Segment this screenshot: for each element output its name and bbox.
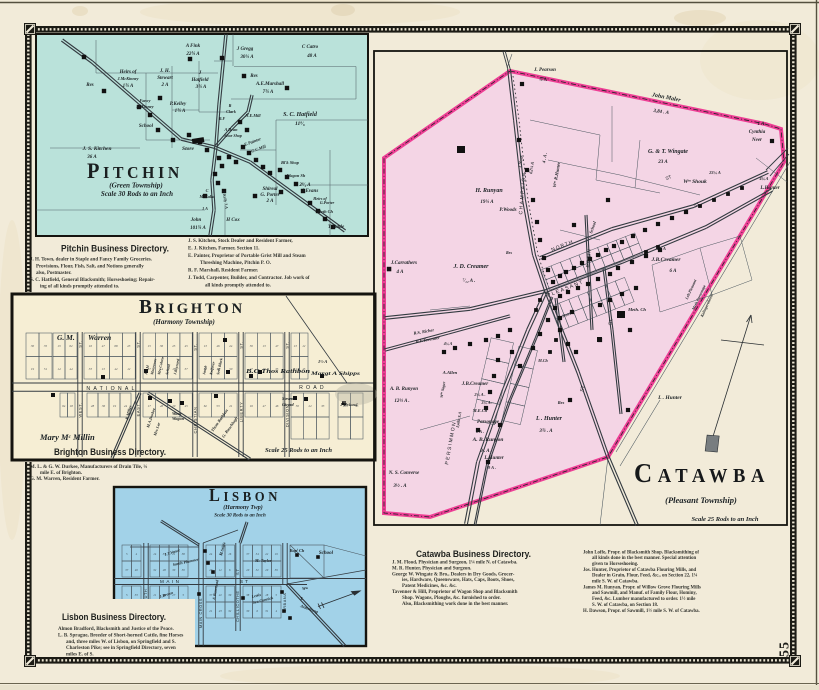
svg-text:School: School	[139, 124, 154, 129]
svg-text:J Evans: J Evans	[301, 189, 319, 194]
svg-text:Dealer in Grain, Flour, Feed,: Dealer in Grain, Flour, Feed, &c., on Se…	[592, 574, 698, 579]
svg-text:A Fink: A Fink	[185, 44, 201, 49]
svg-text:13: 13	[57, 344, 61, 348]
svg-text:101¾ A: 101¾ A	[190, 226, 206, 231]
svg-text:Jos. Hunter, Proprietor of Cat: Jos. Hunter, Proprietor of Catawba Flour…	[583, 568, 697, 573]
svg-text:Scale 25 Rods to an Inch: Scale 25 Rods to an Inch	[692, 516, 759, 523]
svg-text:Bl'k Shop: Bl'k Shop	[280, 160, 300, 165]
svg-text:1 A: 1 A	[202, 206, 208, 211]
svg-text:Threshing Machine, Pitchin P.: Threshing Machine, Pitchin P. O.	[200, 261, 272, 266]
svg-text:Scale 25 Rods to an Inch: Scale 25 Rods to an Inch	[265, 447, 332, 454]
svg-text:J. M. Flood, Physician and Sur: J. M. Flood, Physician and Surgeon, 1¼ m…	[392, 561, 517, 566]
svg-text:Wm Shouk: Wm Shouk	[683, 179, 707, 185]
svg-text:50: 50	[296, 404, 300, 408]
svg-text:32: 32	[153, 568, 157, 572]
svg-text:ing of all kinds promptly atte: ing of all kinds promptly attended to.	[40, 285, 120, 290]
svg-text:2⁸⁄₄ A: 2⁸⁄₄ A	[298, 182, 311, 188]
svg-text:44: 44	[69, 367, 73, 371]
svg-text:E. J. Kitchen, Farmer, Section: E. J. Kitchen, Farmer, Section 11.	[188, 246, 260, 251]
svg-text:19: 19	[113, 404, 117, 408]
svg-text:Catawba Business Directory.: Catawba Business Directory.	[416, 549, 531, 560]
svg-text:23: 23	[127, 344, 131, 348]
svg-text:MAIN CROSS: MAIN CROSS	[199, 598, 203, 628]
svg-text:11⁸⁄₆: 11⁸⁄₆	[295, 121, 305, 127]
svg-text:also, Postmaster.: also, Postmaster.	[36, 271, 72, 276]
svg-text:19¼ A: 19¼ A	[480, 200, 494, 205]
svg-text:J. H.: J. H.	[159, 69, 170, 74]
svg-text:¾ A: ¾ A	[539, 78, 548, 83]
svg-text:19: 19	[275, 552, 279, 556]
svg-text:Heirs of: Heirs of	[119, 70, 138, 75]
svg-text:N.E.Mill: N.E.Mill	[244, 113, 261, 118]
svg-text:EAST: EAST	[136, 404, 141, 417]
svg-text:all kinds promptly attended to: all kinds promptly attended to.	[205, 283, 272, 288]
svg-text:CHRISTIAN: CHRISTIAN	[193, 407, 198, 434]
svg-text:46: 46	[160, 404, 164, 408]
svg-text:36: 36	[102, 404, 106, 408]
svg-text:3¾ . A: 3¾ . A	[538, 429, 553, 434]
svg-text:A.E.Marshall: A.E.Marshall	[255, 82, 285, 87]
svg-text:Also, Blacksmithing work done: Also, Blacksmithing work done in the bes…	[402, 602, 508, 607]
svg-text:L.Hunter: L.Hunter	[759, 186, 779, 191]
svg-text:John: John	[190, 218, 202, 223]
svg-text:Brighton Business Directory.: Brighton Business Directory.	[54, 447, 166, 457]
svg-text:13: 13	[102, 367, 106, 371]
svg-text:48 A: 48 A	[306, 54, 317, 59]
svg-text:12: 12	[302, 344, 306, 348]
svg-text:J. H. Town, dealer in Staple a: J. H. Town, dealer in Staple and Fancy F…	[30, 258, 153, 263]
svg-text:9 . A .: 9 . A .	[480, 449, 492, 454]
svg-text:R: R	[229, 103, 232, 108]
svg-text:Store: Store	[182, 146, 194, 152]
svg-text:J. Pearson: J. Pearson	[533, 68, 556, 73]
svg-text:38: 38	[246, 593, 250, 597]
svg-text:URBANA: URBANA	[283, 593, 287, 612]
svg-text:J: J	[198, 71, 202, 76]
svg-text:and, three miles W. of Lisbon,: and, three miles W. of Lisbon, on Spring…	[66, 640, 177, 645]
svg-text:14: 14	[153, 552, 157, 556]
svg-text:G.Porter: G.Porter	[320, 200, 335, 205]
svg-text:16: 16	[228, 552, 232, 556]
svg-text:E. Painter, Proprietor of Port: E. Painter, Proprietor of Portable Grist…	[188, 254, 307, 259]
svg-text:45: 45	[185, 344, 189, 348]
svg-text:22¾ A: 22¾ A	[185, 52, 200, 57]
svg-text:James M. Runyan, Propr. of Wil: James M. Runyan, Propr. of Willow Grove …	[583, 585, 701, 590]
svg-text:J. Todd, Carpenter, Builder, a: J. Todd, Carpenter, Builder, and Contrac…	[188, 276, 310, 281]
svg-text:Stewart: Stewart	[157, 76, 173, 81]
svg-text:C: C	[206, 188, 209, 193]
svg-text:1½ A: 1½ A	[318, 359, 327, 364]
svg-text:LIBERTY: LIBERTY	[239, 402, 244, 423]
svg-text:C Catro: C Catro	[302, 45, 319, 50]
svg-text:and Sawmill, and Manuf. of Fam: and Sawmill, and Manuf. of Family Flour,…	[592, 591, 698, 596]
svg-text:15: 15	[148, 344, 152, 348]
svg-text:L . Hunter: L . Hunter	[535, 416, 563, 422]
svg-text:L. B. Sprague, Breeder of Shor: L. B. Sprague, Breeder of Short-horned C…	[58, 633, 183, 638]
svg-text:ROAD: ROAD	[299, 385, 327, 391]
svg-text:Bapt Ch: Bapt Ch	[289, 548, 305, 553]
svg-text:Charleston Pike; see in Spring: Charleston Pike; see in Springfield Dire…	[66, 646, 176, 651]
svg-text:16: 16	[250, 404, 254, 408]
svg-text:4½ A: 4½ A	[655, 246, 666, 251]
svg-text:J. S. Kitchen, Stock Dealer an: J. S. Kitchen, Stock Dealer and Resident…	[188, 239, 293, 244]
svg-text:Neer: Neer	[751, 138, 762, 143]
svg-text:Shireal: Shireal	[262, 187, 278, 192]
svg-text:miles E. of S.: miles E. of S.	[66, 653, 94, 658]
svg-text:J Gregg: J Gregg	[236, 47, 254, 52]
svg-text:⁷⁄₁₂ A .: ⁷⁄₁₂ A .	[463, 278, 476, 284]
svg-text:R. F. Marshall, Resident Farme: R. F. Marshall, Resident Farmer.	[188, 269, 259, 274]
svg-text:28: 28	[91, 404, 95, 408]
svg-text:46: 46	[216, 344, 220, 348]
svg-text:19: 19	[31, 367, 35, 371]
svg-text:ST.: ST.	[239, 341, 244, 349]
svg-text:35: 35	[44, 344, 48, 348]
svg-text:Res: Res	[558, 400, 565, 405]
svg-text:37: 37	[185, 367, 189, 371]
svg-text:B.C.Thos Rathbon: B.C.Thos Rathbon	[245, 368, 311, 375]
svg-text:R.F: R.F	[219, 116, 226, 121]
svg-text:30¼ A: 30¼ A	[239, 55, 254, 60]
svg-text:55: 55	[778, 641, 793, 657]
svg-text:L.Hunter: L.Hunter	[483, 456, 503, 461]
svg-text:16: 16	[89, 344, 93, 348]
svg-text:3¼ A .: 3¼ A .	[480, 400, 492, 405]
svg-text:P.Woods: P.Woods	[499, 208, 516, 213]
svg-text:A. B. Runyon: A. B. Runyon	[389, 387, 418, 392]
svg-text:N. S. Converse: N. S. Converse	[388, 471, 420, 476]
svg-text:51: 51	[44, 367, 48, 371]
svg-text:30: 30	[182, 568, 186, 572]
svg-text:68: 68	[114, 344, 118, 348]
svg-text:30: 30	[31, 344, 35, 348]
svg-text:T Tuttle: T Tuttle	[328, 225, 345, 230]
svg-text:18: 18	[70, 404, 74, 408]
svg-text:(Pleasant Township): (Pleasant Township)	[665, 495, 737, 505]
svg-text:Almon Bradford, Blacksmith and: Almon Bradford, Blacksmith and Justice o…	[58, 627, 174, 632]
svg-text:36: 36	[160, 344, 164, 348]
svg-text:33: 33	[89, 367, 93, 371]
svg-text:4¼ A: 4¼ A	[443, 341, 453, 346]
svg-text:23¼ A: 23¼ A	[708, 170, 721, 175]
svg-text:L . Hunter: L . Hunter	[657, 395, 683, 401]
svg-text:62: 62	[69, 344, 73, 348]
svg-text:John Loffe, Propr. of Blacksmi: John Loffe, Propr. of Blacksmith Shop. B…	[583, 550, 699, 555]
svg-text:Meth. Ch: Meth. Ch	[627, 307, 646, 312]
svg-text:3¾ A: 3¾ A	[195, 85, 207, 90]
svg-text:1¾ A: 1¾ A	[175, 109, 186, 114]
svg-text:A Dean: A Dean	[224, 127, 239, 132]
svg-text:Margt A Shipps: Margt A Shipps	[310, 371, 360, 377]
svg-text:40: 40	[135, 568, 139, 572]
svg-text:G. M.: G. M.	[57, 333, 75, 342]
svg-text:Lisbon Business Directory.: Lisbon Business Directory.	[62, 612, 166, 622]
svg-text:42: 42	[114, 367, 118, 371]
svg-text:12: 12	[127, 367, 131, 371]
svg-text:Patent Medicines, &c. &c.: Patent Medicines, &c. &c.	[402, 584, 457, 589]
svg-text:37: 37	[125, 568, 129, 572]
svg-text:H Cox: H Cox	[225, 218, 240, 223]
svg-text:32: 32	[256, 568, 260, 572]
svg-text:J. S. Kitchen: J. S. Kitchen	[81, 146, 111, 152]
svg-text:64: 64	[62, 404, 66, 408]
svg-text:M. R. Hunter, Physician and Su: M. R. Hunter, Physician and Surgeon.	[392, 566, 471, 571]
svg-text:24: 24	[229, 344, 233, 348]
svg-text:6 A: 6 A	[670, 269, 678, 274]
svg-text:28: 28	[163, 568, 167, 572]
svg-text:47: 47	[275, 344, 279, 348]
svg-text:50: 50	[250, 344, 254, 348]
svg-text:all kinds done in the best man: all kinds done in the best manner. Speci…	[592, 556, 697, 561]
svg-text:22: 22	[309, 404, 313, 408]
svg-text:36 A: 36 A	[86, 155, 97, 160]
svg-text:31: 31	[265, 609, 269, 613]
svg-text:25: 25	[172, 344, 176, 348]
svg-text:29: 29	[172, 404, 176, 408]
svg-text:Girard: Girard	[282, 402, 295, 407]
svg-text:ST.: ST.	[136, 340, 141, 348]
svg-text:George W. Wingate & Bro., Deal: George W. Wingate & Bro., Dealers in Dry…	[392, 572, 515, 577]
svg-text:Clark: Clark	[226, 109, 237, 114]
svg-text:mile E. of Brighton.: mile E. of Brighton.	[40, 471, 83, 476]
svg-text:20: 20	[246, 568, 250, 572]
svg-text:1 A: 1 A	[758, 122, 766, 127]
svg-text:Cynthia: Cynthia	[749, 130, 766, 135]
svg-text:62: 62	[204, 404, 208, 408]
svg-text:21: 21	[229, 404, 233, 408]
svg-text:1¾ A: 1¾ A	[123, 84, 134, 89]
svg-text:M.Ch: M.Ch	[537, 358, 548, 363]
svg-text:30: 30	[172, 568, 176, 572]
svg-text:Fancy: Fancy	[140, 98, 151, 103]
svg-text:M'Calla: M'Calla	[199, 194, 216, 199]
svg-text:Mary Mc Millin: Mary Mc Millin	[39, 432, 95, 442]
svg-text:Mc Taylor: Mc Taylor	[254, 558, 272, 563]
svg-text:Res: Res	[86, 83, 94, 88]
svg-text:33: 33	[321, 404, 325, 408]
svg-text:33: 33	[135, 593, 139, 597]
svg-text:Shop. Wagons, Ploughs, &c. fu: Shop. Wagons, Ploughs, &c. furnished to …	[402, 596, 501, 601]
svg-text:12: 12	[219, 568, 223, 572]
svg-text:Scale 30 Rods to an Inch: Scale 30 Rods to an Inch	[214, 514, 266, 519]
svg-text:45: 45	[185, 404, 189, 408]
svg-text:WEST.: WEST.	[78, 402, 83, 417]
svg-text:M'Kinney: M'Kinney	[135, 104, 153, 109]
svg-text:Meth Ch: Meth Ch	[316, 209, 334, 214]
svg-text:G. M. Warren, Resident Farmer.: G. M. Warren, Resident Farmer.	[30, 477, 100, 482]
svg-text:CHILLICOTHE: CHILLICOTHE	[236, 590, 240, 622]
svg-text:39: 39	[275, 568, 279, 572]
svg-text:Shoe Shop: Shoe Shop	[224, 133, 242, 138]
svg-text:ST.: ST.	[193, 343, 198, 351]
svg-text:DIVISION: DIVISION	[285, 405, 290, 427]
svg-text:M. L. & G. W. Durkee, Manufact: M. L. & G. W. Durkee, Manufacturers of D…	[30, 465, 147, 470]
svg-text:ies, Hardware, Queensware, Hat: ies, Hardware, Queensware, Hats, Caps, B…	[402, 578, 515, 583]
svg-text:mile S. W. of Catawba.: mile S. W. of Catawba.	[592, 580, 639, 585]
svg-text:G. Porter: G. Porter	[260, 193, 279, 198]
svg-text:ST.: ST.	[78, 340, 83, 348]
svg-text:ST: ST	[240, 579, 250, 584]
svg-text:23: 23	[219, 609, 223, 613]
svg-text:G. & T. Wingate: G. & T. Wingate	[648, 149, 688, 155]
svg-text:22: 22	[265, 552, 269, 556]
svg-text:School: School	[319, 551, 334, 556]
svg-text:J.Carrathers: J.Carrathers	[390, 261, 417, 266]
svg-text:(Harmony Township): (Harmony Township)	[153, 318, 215, 326]
svg-text:Res: Res	[506, 250, 512, 255]
svg-text:46: 46	[275, 404, 279, 408]
svg-text:S. C. Hatfield, General Blacks: S. C. Hatfield, General Blacksmith; Hors…	[30, 278, 155, 283]
svg-text:Wagon Sh: Wagon Sh	[287, 173, 306, 178]
svg-text:T.: T.	[300, 596, 303, 601]
svg-text:2¼ A .: 2¼ A .	[473, 392, 485, 397]
svg-text:13: 13	[294, 344, 298, 348]
svg-text:Wagon: Wagon	[172, 416, 185, 421]
svg-text:Feed, &c. Lumber manufactured: Feed, &c. Lumber manufactured to order. …	[592, 597, 695, 602]
svg-text:1 A .: 1 A .	[476, 429, 484, 434]
svg-text:Pitchin Business Directory.: Pitchin Business Directory.	[61, 244, 169, 255]
svg-text:J.B.Creamer: J.B.Creamer	[461, 382, 488, 387]
svg-text:4¾ A: 4¾ A	[759, 176, 769, 181]
svg-text:4 A: 4 A	[396, 270, 405, 275]
svg-text:P.Kelley: P.Kelley	[170, 102, 187, 107]
svg-text:37: 37	[246, 552, 250, 556]
svg-text:Scale 30 Rods to an Inch: Scale 30 Rods to an Inch	[101, 190, 173, 198]
svg-text:9 A .: 9 A .	[488, 465, 496, 470]
svg-text:Steven: Steven	[282, 396, 294, 401]
svg-text:2 A: 2 A	[266, 199, 275, 204]
svg-text:38: 38	[182, 552, 186, 556]
svg-text:23 A: 23 A	[657, 160, 668, 165]
svg-text:13: 13	[263, 344, 267, 348]
svg-text:Parsonage: Parsonage	[477, 420, 500, 425]
svg-text:J. D. Creamer: J. D. Creamer	[453, 264, 490, 270]
svg-text:NATIONAL: NATIONAL	[86, 386, 137, 392]
svg-text:21: 21	[209, 609, 213, 613]
svg-text:7¾ A: 7¾ A	[263, 90, 274, 95]
svg-text:(Harmony Twp): (Harmony Twp)	[223, 504, 263, 511]
svg-text:12½ A .: 12½ A .	[394, 399, 409, 404]
svg-text:ST.: ST.	[285, 341, 290, 349]
svg-text:Tavenner & Hill, Proprietor of: Tavenner & Hill, Proprietor of Wagon Sho…	[392, 590, 518, 595]
svg-text:3½ . A: 3½ . A	[392, 484, 407, 489]
svg-text:30: 30	[246, 609, 250, 613]
svg-text:32: 32	[228, 609, 232, 613]
svg-text:22: 22	[219, 593, 223, 597]
svg-text:34: 34	[256, 552, 260, 556]
svg-text:S. C. Hatfield: S. C. Hatfield	[283, 112, 318, 118]
svg-text:47: 47	[102, 344, 106, 348]
svg-text:Warren: Warren	[88, 333, 111, 342]
svg-text:A.Allen: A.Allen	[442, 370, 458, 375]
svg-text:J.McKinney: J.McKinney	[116, 76, 138, 81]
svg-text:13: 13	[204, 344, 208, 348]
svg-text:2 A: 2 A	[161, 83, 170, 88]
svg-text:M.E.Ch: M.E.Ch	[472, 408, 488, 413]
svg-text:S. W. of Catawba, on Section 1: S. W. of Catawba, on Section 18.	[592, 603, 658, 608]
svg-text:given to Horseshoeing.: given to Horseshoeing.	[592, 562, 638, 567]
svg-text:24: 24	[209, 552, 213, 556]
svg-text:Hatfield: Hatfield	[191, 78, 209, 83]
svg-text:ST: ST	[235, 568, 240, 575]
svg-text:29: 29	[265, 568, 269, 572]
svg-text:Provisions, Flour, Fish, Salt,: Provisions, Flour, Fish, Salt, and Notio…	[36, 264, 144, 269]
svg-text:Res: Res	[250, 74, 258, 79]
svg-text:39: 39	[228, 593, 232, 597]
svg-text:53: 53	[216, 404, 220, 408]
svg-text:A. B. Runyon: A. B. Runyon	[472, 437, 504, 443]
svg-text:H. Runyan: H. Runyan	[474, 188, 503, 194]
svg-text:J.B.Creamer: J.B.Creamer	[650, 257, 681, 263]
svg-text:47: 47	[263, 404, 267, 408]
svg-text:14: 14	[57, 367, 61, 371]
svg-text:(Green Township): (Green Township)	[109, 182, 162, 190]
svg-text:H. Dawson, Propr. of Sawmill,: H. Dawson, Propr. of Sawmill, 1½ mile S.…	[583, 609, 700, 614]
svg-text:MAIN: MAIN	[160, 579, 181, 584]
